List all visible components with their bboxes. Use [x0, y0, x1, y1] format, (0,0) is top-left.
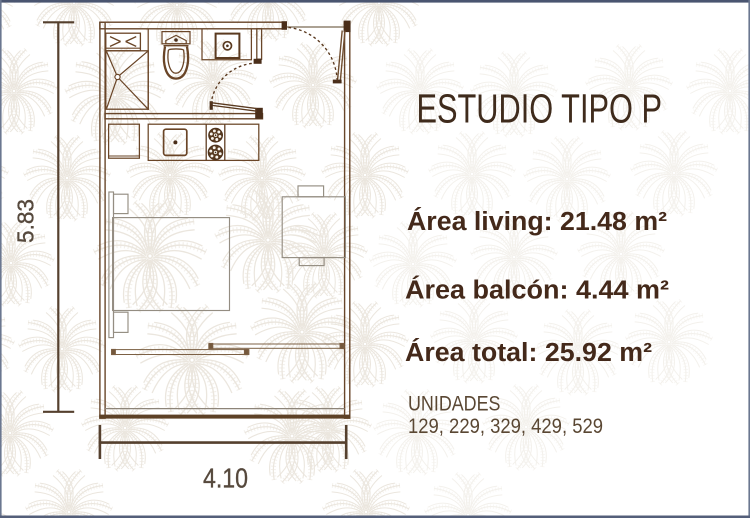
svg-text:UNIDADES: UNIDADES — [408, 392, 501, 415]
svg-text:129, 229, 329, 429, 529: 129, 229, 329, 429, 529 — [408, 415, 603, 438]
svg-text:Área balcón: 4.44 m²: Área balcón: 4.44 m² — [405, 275, 669, 304]
svg-text:Área living: 21.48 m²: Área living: 21.48 m² — [407, 207, 667, 236]
svg-text:ESTUDIO TIPO P: ESTUDIO TIPO P — [417, 85, 663, 131]
svg-text:Área total: 25.92 m²: Área total: 25.92 m² — [405, 338, 652, 367]
svg-text:5.83: 5.83 — [13, 199, 39, 243]
svg-text:4.10: 4.10 — [203, 463, 248, 494]
